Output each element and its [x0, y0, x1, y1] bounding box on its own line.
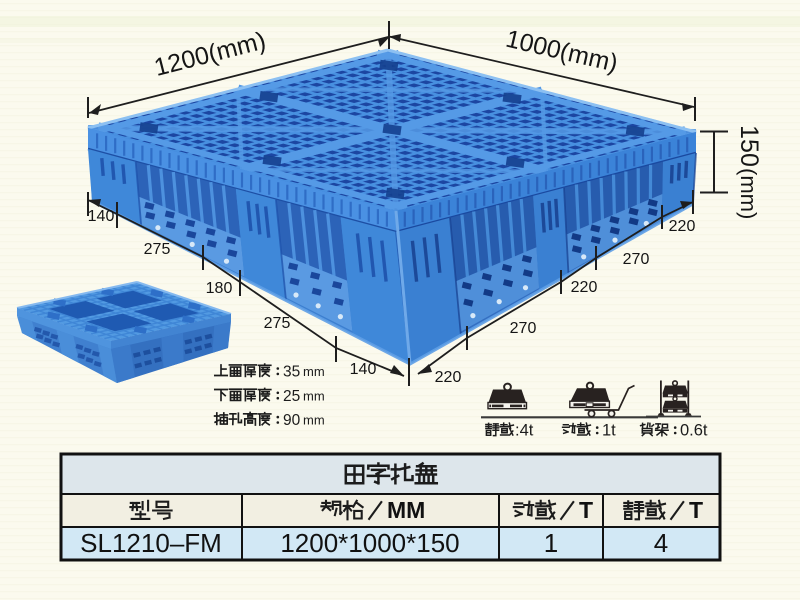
svg-text:(mm): (mm) [736, 168, 761, 219]
svg-text:1200*1000*150: 1200*1000*150 [280, 528, 459, 558]
svg-text:T: T [689, 497, 703, 523]
svg-text:mm: mm [303, 364, 325, 379]
svg-text:220: 220 [435, 369, 462, 386]
svg-text:140: 140 [88, 208, 115, 225]
svg-text:mm: mm [303, 413, 325, 428]
svg-text:270: 270 [623, 251, 650, 268]
svg-text:220: 220 [571, 279, 598, 296]
svg-text:25: 25 [283, 388, 300, 405]
svg-text:140: 140 [350, 361, 377, 378]
svg-text:275: 275 [144, 241, 171, 258]
svg-text:4: 4 [654, 528, 668, 558]
svg-text:275: 275 [264, 315, 291, 332]
svg-text:SL1210–FM: SL1210–FM [80, 528, 222, 558]
svg-text::4t: :4t [515, 422, 534, 440]
svg-text:T: T [579, 497, 593, 523]
svg-text:180: 180 [206, 280, 233, 297]
svg-text:MM: MM [387, 497, 425, 523]
svg-text:1: 1 [544, 528, 558, 558]
svg-text:1t: 1t [602, 422, 616, 440]
svg-text:mm: mm [303, 388, 325, 403]
svg-text:90: 90 [283, 412, 301, 429]
svg-text:35: 35 [283, 364, 300, 381]
svg-text:220: 220 [669, 218, 696, 235]
svg-text:270: 270 [510, 320, 537, 337]
svg-text:0.6t: 0.6t [680, 422, 708, 440]
svg-text:150: 150 [735, 125, 763, 167]
